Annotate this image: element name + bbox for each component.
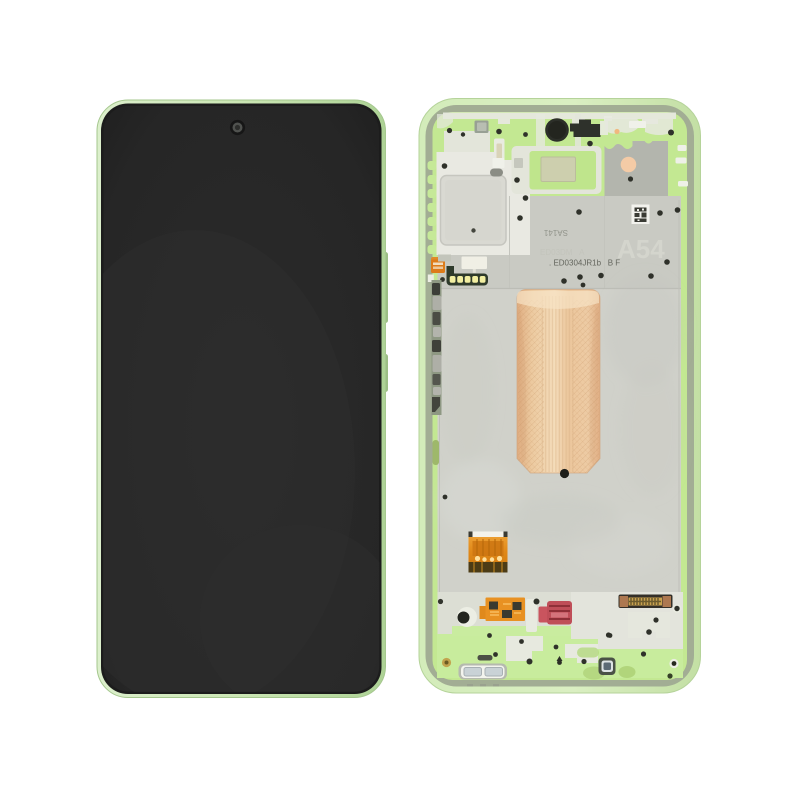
svg-text:A54: A54: [617, 234, 665, 264]
svg-text:SA141: SA141: [543, 228, 568, 237]
svg-text:. ED0304JR1b B F: . ED0304JR1b B F: [549, 259, 620, 268]
svg-text:ED03DM A: ED03DM A: [540, 248, 585, 257]
